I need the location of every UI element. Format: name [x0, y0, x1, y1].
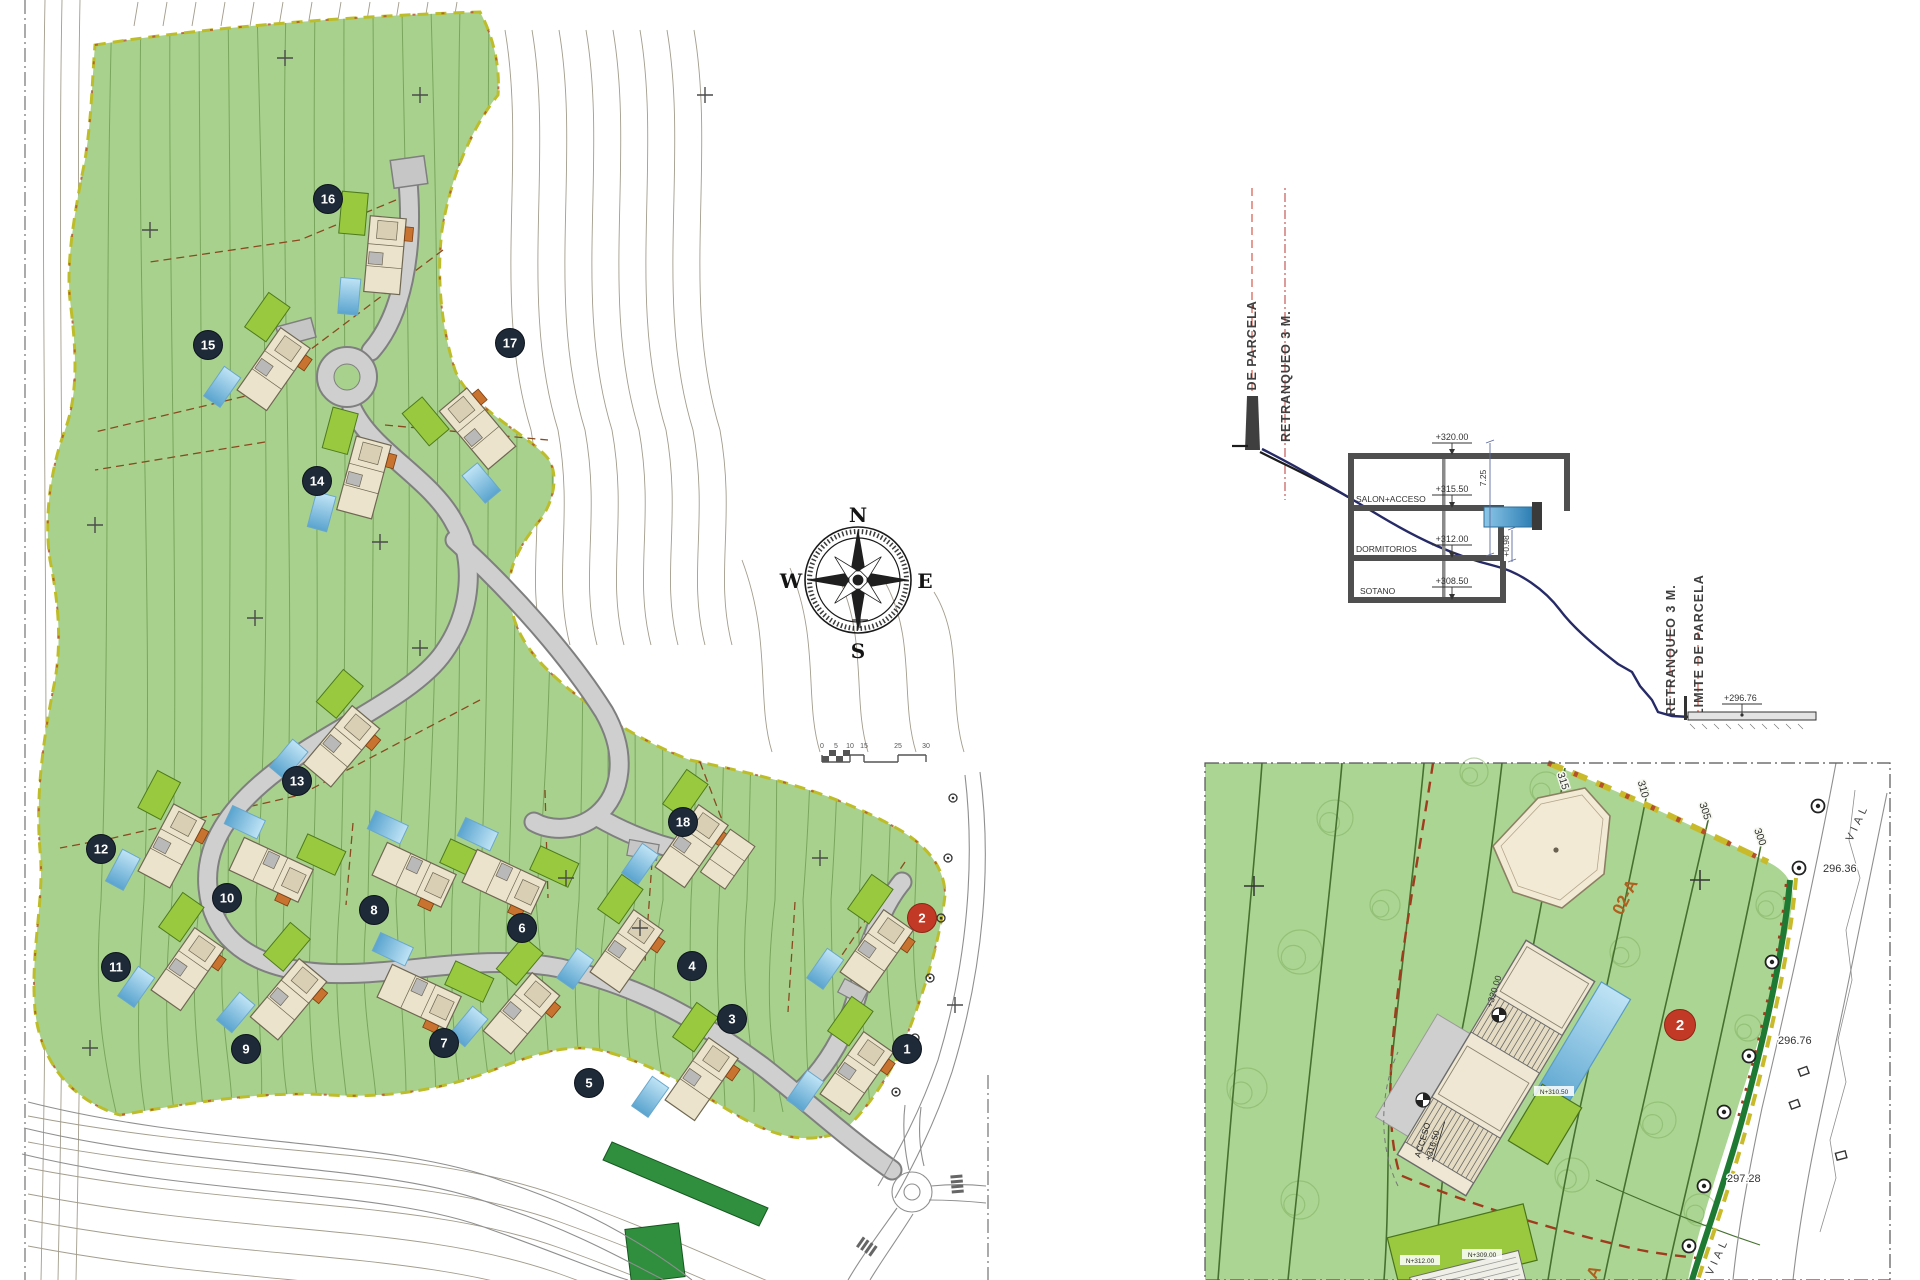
- svg-text:5: 5: [585, 1076, 592, 1091]
- floor-label-sotano: SOTANO: [1360, 586, 1396, 596]
- plot-marker-4: 4: [678, 952, 707, 981]
- compass-south-label: S: [851, 639, 865, 663]
- scale-tick-label: 30: [922, 743, 930, 750]
- section-pool-wall: [1532, 502, 1542, 530]
- svg-text:3: 3: [728, 1012, 735, 1027]
- svg-text:N+310.50: N+310.50: [1540, 1089, 1569, 1096]
- plot-marker-9: 9: [232, 1035, 261, 1064]
- compass-rose-icon: N E S W: [779, 503, 933, 663]
- svg-text:N+309.00: N+309.00: [1468, 1252, 1497, 1259]
- svg-text:1: 1: [903, 1042, 910, 1057]
- street-furniture: [1789, 1066, 1847, 1160]
- floor-label-dormitorios: DORMITORIOS: [1356, 544, 1417, 554]
- svg-text:15: 15: [201, 338, 215, 353]
- contour-label-310: 310: [1635, 779, 1651, 799]
- plot-marker-18: 18: [669, 808, 698, 837]
- svg-text:12: 12: [94, 842, 108, 857]
- plot-marker-11: 11: [102, 953, 131, 982]
- scale-tick-label: 25: [894, 743, 902, 750]
- roundabout: [317, 347, 377, 407]
- svg-text:8: 8: [370, 903, 377, 918]
- detail-plot-marker-2: 2: [1665, 1010, 1696, 1041]
- contour-label-305: 305: [1696, 801, 1713, 822]
- svg-text:13: 13: [290, 774, 304, 789]
- section-drawing: LIMITE DE PARCELA RETRANQUEO 3 M. RETRAN…: [1232, 188, 1816, 729]
- level-marker-icon: [1492, 1008, 1506, 1022]
- vial-street-label: VIAL: [1704, 1236, 1732, 1277]
- detail-plan: 315310305300 296.36296.76297.28 VIALVIAL: [1205, 758, 1890, 1280]
- street-elevation-label: 296.36: [1823, 863, 1857, 875]
- svg-text:14: 14: [310, 474, 325, 489]
- plot-marker-16: 16: [314, 185, 343, 214]
- drawing-sheet: 123456789101112131415161718 N E S W 0510…: [0, 0, 1920, 1280]
- svg-text:7: 7: [440, 1036, 447, 1051]
- plot-marker-5: 5: [575, 1069, 604, 1098]
- section-pool: [1484, 507, 1532, 527]
- terrain-profile-line: [1262, 449, 1690, 717]
- crosswalks: [856, 1175, 964, 1257]
- plot-marker-6: 6: [508, 914, 537, 943]
- svg-text:10: 10: [220, 891, 234, 906]
- svg-text:4: 4: [688, 959, 696, 974]
- svg-text:2: 2: [1676, 1017, 1684, 1034]
- compass-west-label: W: [779, 569, 803, 593]
- section-limite-parcela-right: LIMITE DE PARCELA: [1692, 574, 1706, 716]
- compass-north-label: N: [849, 503, 867, 527]
- svg-text:2: 2: [918, 911, 925, 926]
- terrace-level-chip: N+310.50: [1534, 1086, 1574, 1096]
- level-marker-icon: [1416, 1093, 1430, 1107]
- svg-text:6: 6: [518, 921, 525, 936]
- street-elevation-label: 297.28: [1727, 1173, 1761, 1185]
- plot-marker-8: 8: [360, 896, 389, 925]
- plot-marker-2: 2: [908, 904, 937, 933]
- level-salon: +315.50: [1436, 484, 1469, 494]
- dim-725: 7.25: [1478, 469, 1488, 486]
- scale-bar: 0510152530: [820, 743, 930, 762]
- vial-street-label: VIAL: [1844, 802, 1872, 843]
- svg-text:9: 9: [242, 1042, 249, 1057]
- plot-marker-10: 10: [213, 884, 242, 913]
- plot-marker-14: 14: [303, 467, 332, 496]
- plot-marker-13: 13: [283, 767, 312, 796]
- scale-tick-label: 10: [846, 743, 854, 750]
- section-retranqueo-left: RETRANQUEO 3 M.: [1279, 310, 1293, 442]
- section-retranqueo-right: RETRANQUEO 3 M.: [1664, 584, 1678, 716]
- compass-east-label: E: [917, 569, 932, 593]
- svg-text:16: 16: [321, 192, 335, 207]
- level-sotano: +308.50: [1436, 576, 1469, 586]
- level-top: +320.00: [1436, 432, 1469, 442]
- plot-marker-3: 3: [718, 1005, 747, 1034]
- plot-marker-15: 15: [194, 331, 223, 360]
- retaining-wall: [1245, 396, 1260, 450]
- site-plan-artwork: 123456789101112131415161718 N E S W 0510…: [0, 0, 1920, 1280]
- svg-text:N+312.00: N+312.00: [1406, 1258, 1435, 1265]
- svg-text:18: 18: [676, 815, 690, 830]
- plot-marker-17: 17: [496, 329, 525, 358]
- scale-tick-label: 15: [860, 743, 868, 750]
- plot-marker-12: 12: [87, 835, 116, 864]
- street-elevation-label: 296.76: [1778, 1035, 1812, 1047]
- contour-label-300: 300: [1751, 827, 1768, 848]
- hedge-strips: [603, 1142, 768, 1280]
- svg-text:11: 11: [109, 960, 123, 975]
- scale-tick-label: 5: [834, 743, 838, 750]
- dim-098: +0.98: [1501, 535, 1511, 557]
- site-plan: 123456789101112131415161718: [22, 0, 988, 1280]
- floor-label-salon: SALON+ACCESO: [1356, 494, 1426, 504]
- scale-tick-label: 0: [820, 743, 824, 750]
- plot-marker-7: 7: [430, 1029, 459, 1058]
- plot-marker-1: 1: [893, 1035, 922, 1064]
- svg-text:17: 17: [503, 336, 517, 351]
- level-dormitorios: +312.00: [1436, 534, 1469, 544]
- street-level-label: +296.76: [1724, 693, 1757, 703]
